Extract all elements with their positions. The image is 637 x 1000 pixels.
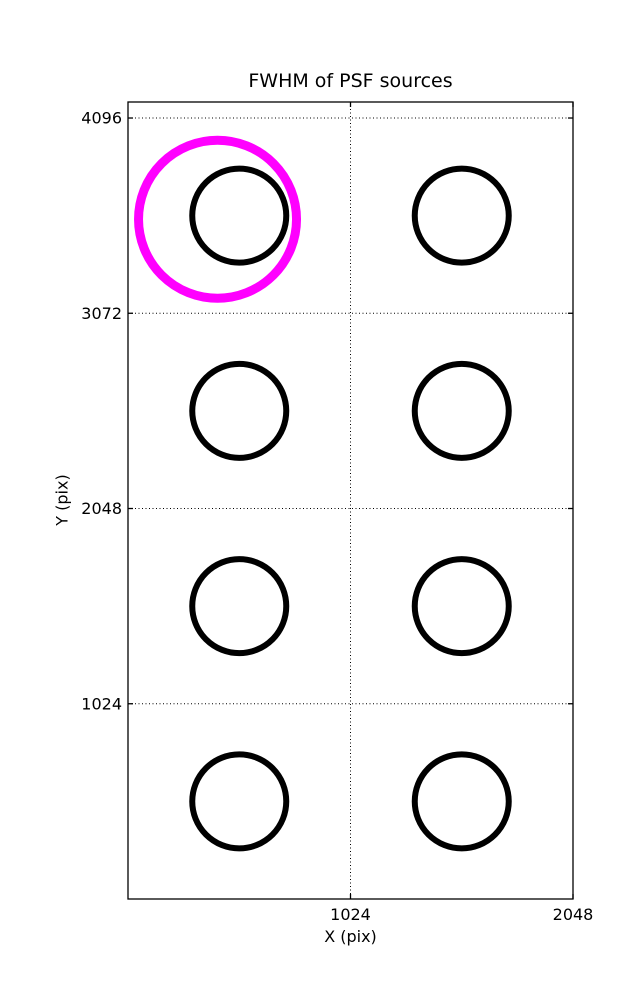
x-tick-label: 1024 [330, 905, 371, 924]
psf-source-marker [192, 364, 286, 458]
plot-canvas: 102420481024204830724096 [0, 0, 637, 1000]
psf-source-marker [192, 169, 286, 263]
psf-source-marker [415, 364, 509, 458]
y-tick-label: 4096 [81, 109, 122, 128]
psf-source-marker [415, 559, 509, 653]
y-tick-label: 3072 [81, 304, 122, 323]
psf-source-marker [192, 559, 286, 653]
x-tick-label: 2048 [553, 905, 594, 924]
psf-source-marker [192, 754, 286, 848]
highlight-marker [139, 140, 297, 298]
fwhm-psf-figure: FWHM of PSF sources 10242048102420483072… [0, 0, 637, 1000]
y-axis-label: Y (pix) [53, 474, 72, 525]
y-tick-label: 2048 [81, 499, 122, 518]
psf-source-marker [415, 754, 509, 848]
x-axis-label: X (pix) [128, 927, 573, 946]
y-tick-label: 1024 [81, 694, 122, 713]
psf-source-marker [415, 169, 509, 263]
